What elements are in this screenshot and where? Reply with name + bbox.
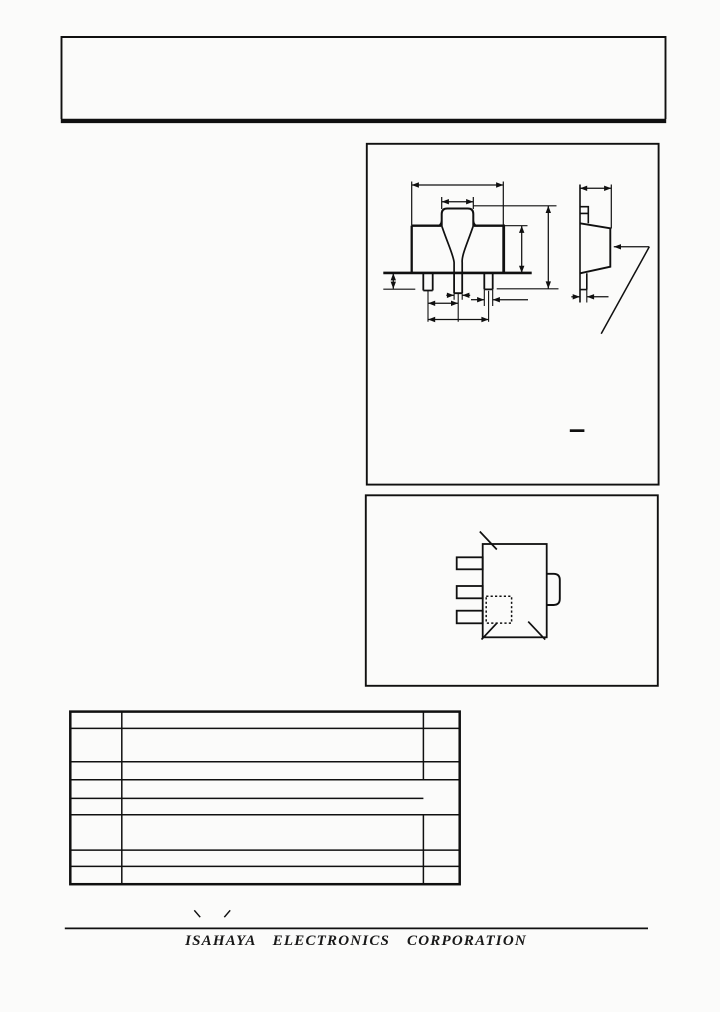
lead-center [454,273,462,293]
package-marking-view [457,532,560,640]
footer-company-name: ISAHAYA ELECTRONICS CORPORATION [56,933,656,950]
outline-drawing-box [367,144,659,485]
front-dimensions [383,182,558,322]
title-block [61,37,666,121]
page-line-art [0,0,720,1012]
marking-drawing-box [366,495,658,686]
spec-table-row-lines [70,728,459,866]
datasheet-page: ISAHAYA ELECTRONICS CORPORATION [0,0,720,1012]
callout-leader-line [601,247,649,334]
package-front-view [383,182,558,322]
spec-table [70,712,459,885]
marking-tab [547,574,560,605]
tab-cap-outline [442,209,474,227]
side-body-profile [580,223,610,273]
marking-box-border [366,495,658,686]
tolerance-dash [570,429,585,432]
marking-lead-2 [457,586,483,598]
funnel-left [442,226,454,273]
side-lead [580,273,587,289]
lead-right [484,273,492,289]
outline-box-border [367,144,659,485]
footer-marks [194,910,230,917]
footer-art [65,910,648,928]
marking-lead-1 [457,557,483,569]
side-tab [580,207,588,224]
marking-area-dotted [486,596,511,623]
lead-left [423,273,432,291]
funnel-right [462,226,473,273]
marking-lead-3 [457,611,483,624]
title-block-border [62,37,666,119]
package-side-view [571,185,649,334]
